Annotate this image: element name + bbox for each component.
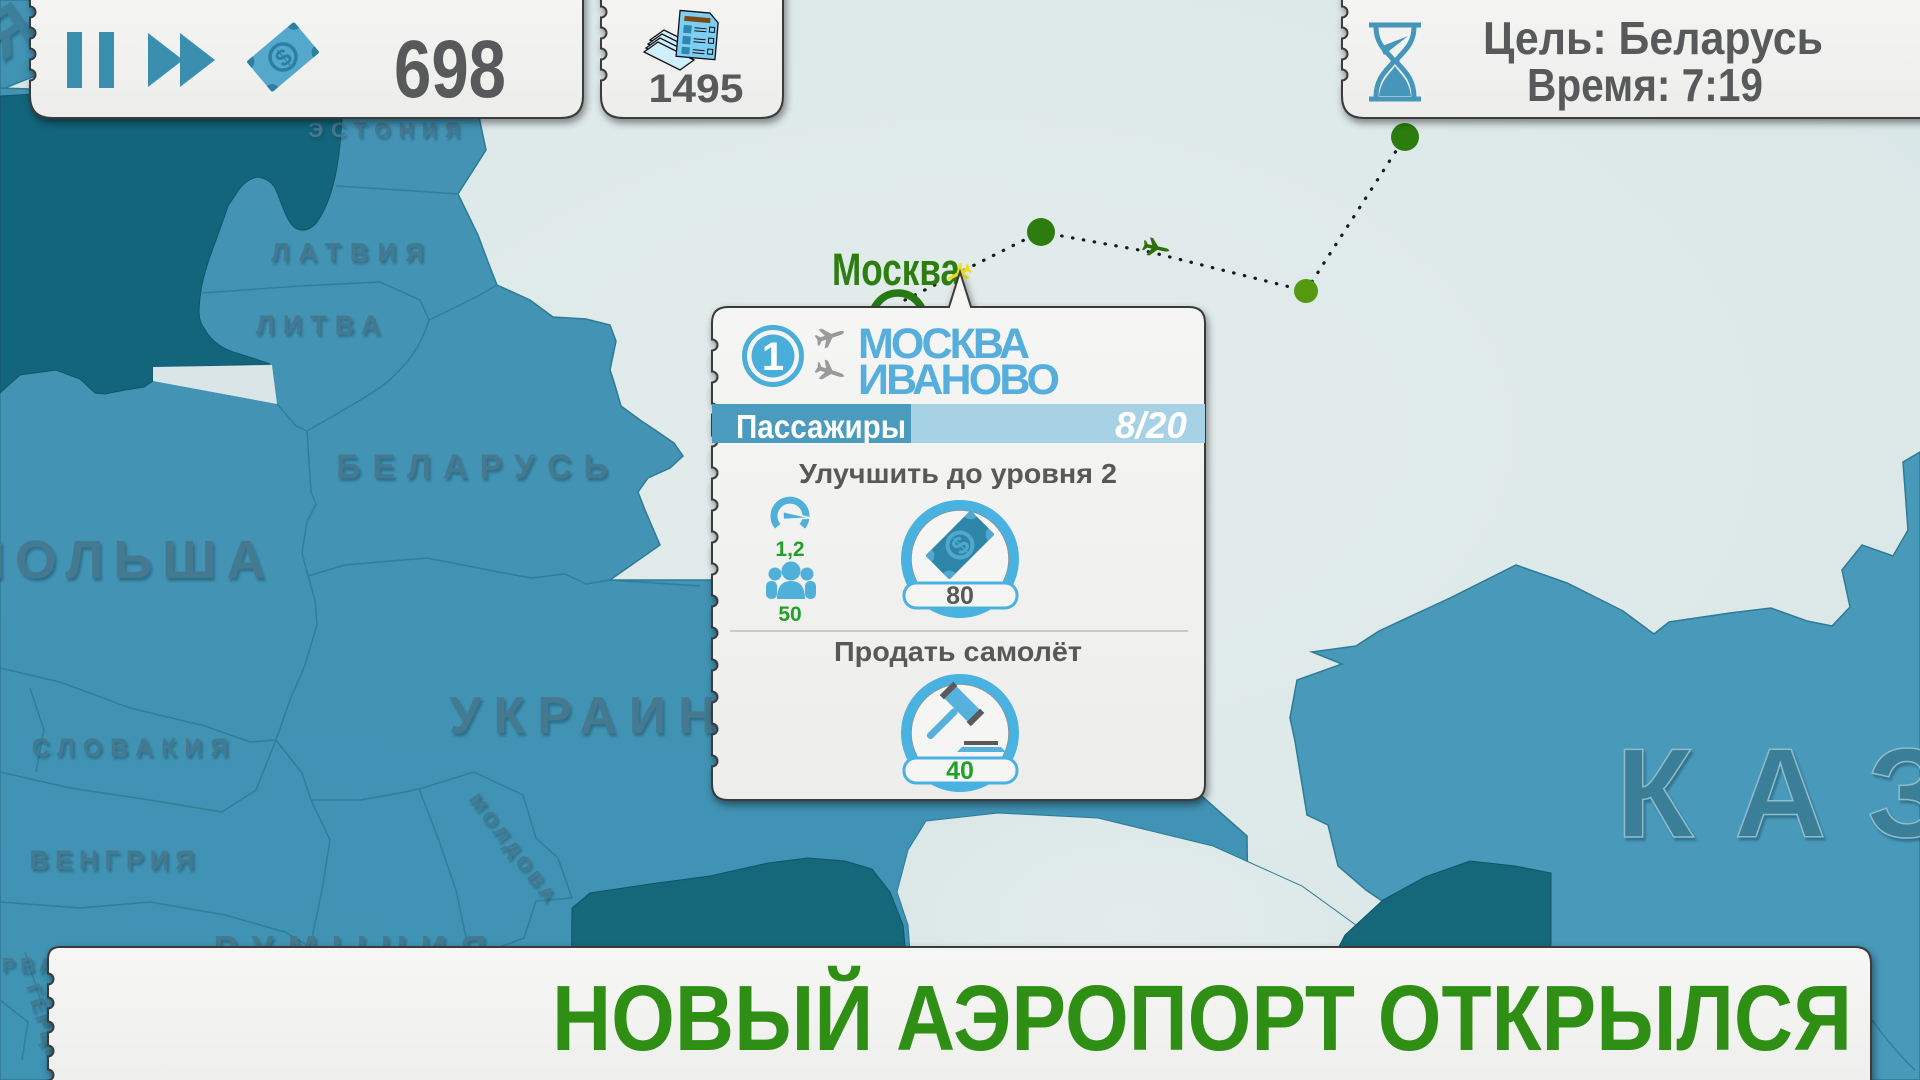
svg-text:Улучшить до уровня 2: Улучшить до уровня 2 [799, 458, 1117, 489]
svg-text:Москва: Москва [832, 244, 961, 295]
svg-text:Цель: Беларусь: Цель: Беларусь [1483, 12, 1823, 64]
svg-text:1,2: 1,2 [775, 538, 804, 561]
svg-text:КАЗ: КАЗ [1616, 722, 1920, 864]
svg-text:50: 50 [778, 603, 801, 626]
svg-text:40: 40 [946, 757, 974, 785]
svg-text:1495: 1495 [649, 67, 744, 111]
svg-text:698: 698 [394, 24, 506, 115]
svg-text:1: 1 [762, 335, 784, 379]
svg-text:ВЕНГРИЯ: ВЕНГРИЯ [29, 845, 200, 875]
svg-text:ЛАТВИЯ: ЛАТВИЯ [271, 237, 433, 267]
svg-text:Продать самолёт: Продать самолёт [834, 636, 1082, 667]
svg-text:НОВЫЙ АЭРОПОРТ ОТКРЫЛСЯ: НОВЫЙ АЭРОПОРТ ОТКРЫЛСЯ [552, 966, 1852, 1070]
svg-text:Время: 7:19: Время: 7:19 [1527, 59, 1763, 111]
svg-text:Пассажиры: Пассажиры [736, 408, 906, 445]
svg-text:ЭСТОНИЯ: ЭСТОНИЯ [308, 119, 468, 142]
svg-text:ИВАНОВО: ИВАНОВО [858, 356, 1060, 404]
svg-text:СЛОВАКИЯ: СЛОВАКИЯ [32, 734, 236, 762]
svg-text:8/20: 8/20 [1115, 405, 1187, 446]
svg-text:БЕЛАРУСЬ: БЕЛАРУСЬ [336, 448, 620, 486]
svg-text:ПОЛЬША: ПОЛЬША [0, 530, 275, 590]
svg-text:ЛИТВА: ЛИТВА [256, 310, 389, 340]
svg-text:80: 80 [946, 582, 974, 610]
